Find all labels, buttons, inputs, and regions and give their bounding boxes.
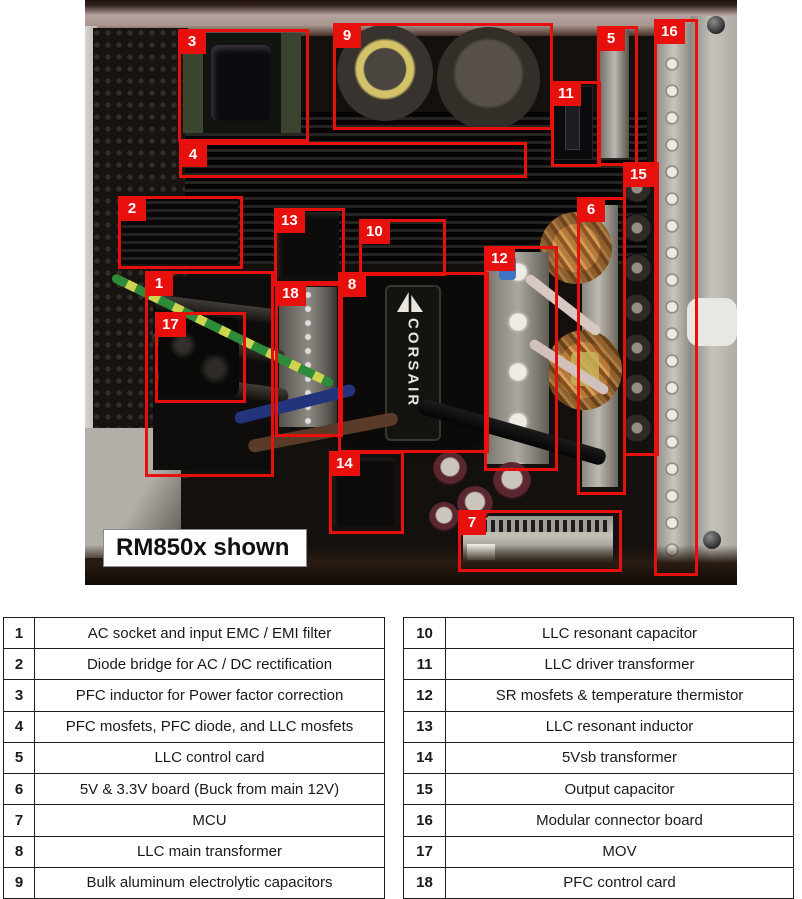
callout-box-10: 10 [359,219,446,276]
legend-number: 18 [404,868,446,898]
callout-number: 9 [333,23,361,48]
callout-box-2: 2 [118,196,243,269]
legend-number: 3 [4,680,35,710]
legend-label: LLC control card [35,743,384,773]
electrolytic-capacitor [433,452,467,486]
legend-label: MOV [446,837,793,867]
callout-number: 17 [155,312,186,337]
legend-number: 1 [4,618,35,648]
callout-number: 3 [178,29,206,54]
callout-box-14: 14 [329,451,404,534]
callout-box-11: 11 [551,81,601,167]
callout-number: 5 [597,26,625,51]
legend-number: 6 [4,774,35,804]
callout-number: 1 [145,271,173,296]
callout-number: 16 [654,19,685,44]
psu-interior-photo: CORSAIR 123456789101112131415161718 RM85… [85,0,737,585]
legend-row-8: 8LLC main transformer [4,836,384,867]
legend-number: 11 [404,649,446,679]
callout-box-5: 5 [597,26,638,166]
legend-row-10: 10LLC resonant capacitor [404,618,793,648]
legend-row-13: 13LLC resonant inductor [404,711,793,742]
legend-label: MCU [35,805,384,835]
screw-icon [707,16,725,34]
legend-row-18: 18PFC control card [404,867,793,898]
legend-number: 15 [404,774,446,804]
legend-number: 8 [4,837,35,867]
legend-label: LLC main transformer [35,837,384,867]
legend-number: 16 [404,805,446,835]
legend-row-9: 9Bulk aluminum electrolytic capacitors [4,867,384,898]
callout-number: 12 [484,246,515,271]
legend-number: 9 [4,868,35,898]
legend-number: 12 [404,680,446,710]
legend-number: 2 [4,649,35,679]
legend-label: PFC mosfets, PFC diode, and LLC mosfets [35,712,384,742]
legend-row-4: 4PFC mosfets, PFC diode, and LLC mosfets [4,711,384,742]
electrolytic-capacitor [429,502,459,532]
callout-box-4: 4 [179,142,527,178]
callout-number: 14 [329,451,360,476]
legend-number: 13 [404,712,446,742]
legend-label: Bulk aluminum electrolytic capacitors [35,868,384,898]
page: CORSAIR 123456789101112131415161718 RM85… [0,0,802,899]
legend-label: PFC inductor for Power factor correction [35,680,384,710]
legend-row-11: 11LLC driver transformer [404,648,793,679]
legend-label: SR mosfets & temperature thermistor [446,680,793,710]
legend-row-2: 2Diode bridge for AC / DC rectification [4,648,384,679]
legend-row-7: 7MCU [4,804,384,835]
legend-table-right: 10LLC resonant capacitor11LLC driver tra… [403,617,794,899]
legend-label: LLC resonant capacitor [446,618,793,648]
callout-number: 10 [359,219,390,244]
callout-number: 18 [275,281,306,306]
legend-label: Output capacitor [446,774,793,804]
callout-number: 13 [274,208,305,233]
legend-number: 4 [4,712,35,742]
callout-number: 2 [118,196,146,221]
legend-row-16: 16Modular connector board [404,804,793,835]
callout-box-7: 7 [458,510,622,572]
legend-row-12: 12SR mosfets & temperature thermistor [404,679,793,710]
legend-row-17: 17MOV [404,836,793,867]
callout-box-3: 3 [178,29,309,142]
legend-label: AC socket and input EMC / EMI filter [35,618,384,648]
callout-box-6: 6 [577,197,626,495]
legend-label: LLC driver transformer [446,649,793,679]
legend-label: 5Vsb transformer [446,743,793,773]
callout-number: 15 [623,162,654,187]
legend-label: Diode bridge for AC / DC rectification [35,649,384,679]
legend-row-3: 3PFC inductor for Power factor correctio… [4,679,384,710]
callout-box-17: 17 [155,312,246,403]
callout-box-9: 9 [333,23,553,130]
legend-row-6: 65V & 3.3V board (Buck from main 12V) [4,773,384,804]
callout-number: 11 [551,81,581,106]
legend-row-1: 1AC socket and input EMC / EMI filter [4,618,384,648]
legend-number: 5 [4,743,35,773]
legend-row-14: 145Vsb transformer [404,742,793,773]
legend-label: PFC control card [446,868,793,898]
legend-table-left: 1AC socket and input EMC / EMI filter2Di… [3,617,385,899]
callout-number: 7 [458,510,486,535]
callout-box-18: 18 [275,281,343,437]
callout-box-12: 12 [484,246,558,471]
legend-number: 17 [404,837,446,867]
legend-label: 5V & 3.3V board (Buck from main 12V) [35,774,384,804]
legend-label: LLC resonant inductor [446,712,793,742]
callout-number: 6 [577,197,605,222]
callout-box-8: 8 [338,272,489,453]
callout-box-13: 13 [274,208,345,286]
legend-number: 10 [404,618,446,648]
legend-label: Modular connector board [446,805,793,835]
legend-row-5: 5LLC control card [4,742,384,773]
legend-number: 7 [4,805,35,835]
callout-box-16: 16 [654,19,698,576]
callout-number: 4 [179,142,207,167]
photo-caption: RM850x shown [103,529,307,567]
legend-number: 14 [404,743,446,773]
legend-row-15: 15Output capacitor [404,773,793,804]
